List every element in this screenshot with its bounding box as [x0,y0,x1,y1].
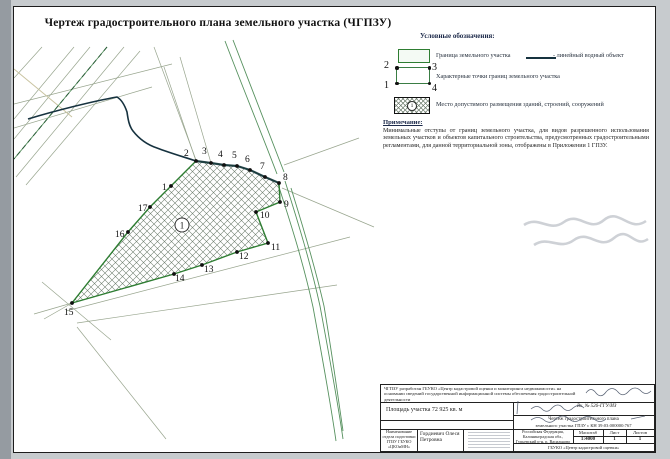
author-name: Гордиевич Олеся Петровна [420,431,460,444]
parcel-area-value: Площадь участка 72 925 кв. м [386,407,462,414]
approval-stamp [468,432,510,448]
boundary-point-17 [148,205,152,209]
boundary-point-label-9: 9 [284,200,289,210]
boundary-point-5 [235,164,239,168]
boundary-point-label-11: 11 [271,243,280,253]
developer-note: ЧГПЗУ разработан ГБУКО «Центр кадастрово… [384,386,579,402]
boundary-point-8 [277,181,281,185]
location-cell: Российская Федерация, Калининградская об… [514,430,572,445]
drawing-title-line2: земельного участка ГПЗУ с КН 39:03:00000… [515,423,652,428]
boundary-point-2 [194,159,198,163]
scale-value: 1:4000 [573,437,603,443]
scan-edge-strip [0,0,11,459]
boundary-point-label-16: 16 [115,230,125,240]
boundary-point-label-6: 6 [245,155,250,165]
boundary-point-3 [209,161,213,165]
sheet-label: Лист [603,430,626,435]
department-cell: Наименование отдела подготовки ГПЗУ ГБУК… [382,430,416,450]
sheet-value: 1 [603,437,626,443]
corner-number-tl: 2 [384,60,389,71]
drawing-title-line1: Чертеж градостроительного плана [515,417,652,423]
sheets-label: Листов [626,430,654,435]
corner-number-br: 4 [432,83,437,94]
title-block: ЧГПЗУ разработан ГБУКО «Центр кадастрово… [380,384,655,452]
legend-boundary-label: Граница земельного участка [436,52,511,59]
legend: Условные обозначения: Граница земельного… [376,27,653,185]
boundary-point-label-13: 13 [204,265,214,275]
boundary-point-7 [263,175,267,179]
scale-label: Масштаб [573,430,603,435]
boundary-point-10 [254,210,258,214]
boundary-point-label-1: 1 [162,183,167,193]
boundary-point-label-3: 3 [202,147,207,157]
legend-placement-label: Место допустимого размещения зданий, стр… [436,101,651,108]
parcel-boundary-swatch [398,49,430,63]
boundary-point-label-2: 2 [184,149,189,159]
boundary-point-6 [248,168,252,172]
boundary-point-label-14: 14 [175,274,185,284]
water-line-swatch [526,57,556,59]
boundary-point-11 [266,241,270,245]
boundary-point-9 [278,200,282,204]
boundary-point-label-12: 12 [239,252,249,262]
zone-number-symbol: 1 [175,218,189,232]
legend-water-label: - линейный водный объект [553,52,624,59]
boundary-point-1 [169,184,173,188]
corner-number-bl: 1 [384,80,389,91]
boundary-point-label-7: 7 [260,162,265,172]
note-title: Примечание: [383,119,423,126]
corner-number-tr: 3 [432,62,437,73]
water-object-line [28,97,196,161]
boundary-point-15 [70,301,74,305]
boundary-points-swatch [396,67,430,84]
boundary-point-16 [126,230,130,234]
sheets-value: 1 [626,437,654,443]
boundary-point-label-10: 10 [260,211,270,221]
zone-number-text: 1 [180,221,185,231]
note-text: Минимальные отступы от границ земельного… [383,128,649,150]
road-centerline-dashed [14,47,107,159]
boundary-point-label-5: 5 [232,151,237,161]
legend-title: Условные обозначения: [420,32,495,40]
swatch-zone-number: 1 [407,101,417,111]
boundary-point-4 [222,163,226,167]
boundary-point-label-8: 8 [283,173,288,183]
boundary-point-label-15: 15 [64,308,74,318]
placement-area-swatch: 1 [394,97,430,114]
boundary-point-label-17: 17 [138,204,148,214]
document-page: 1234567891011121314151617 1 Чертеж градо… [13,6,656,453]
boundary-point-label-4: 4 [218,150,223,160]
document-title: Чертеж градостроительного плана земельно… [42,17,394,29]
faint-watermark [512,205,658,263]
inbox-number: Вх. № 526-ГГУ/ИЗ [577,404,616,410]
organization-cell: ГБУКО «Центр кадастровой оценки» [515,445,652,450]
legend-points-label: Характерные точки границ земельного учас… [436,73,636,80]
